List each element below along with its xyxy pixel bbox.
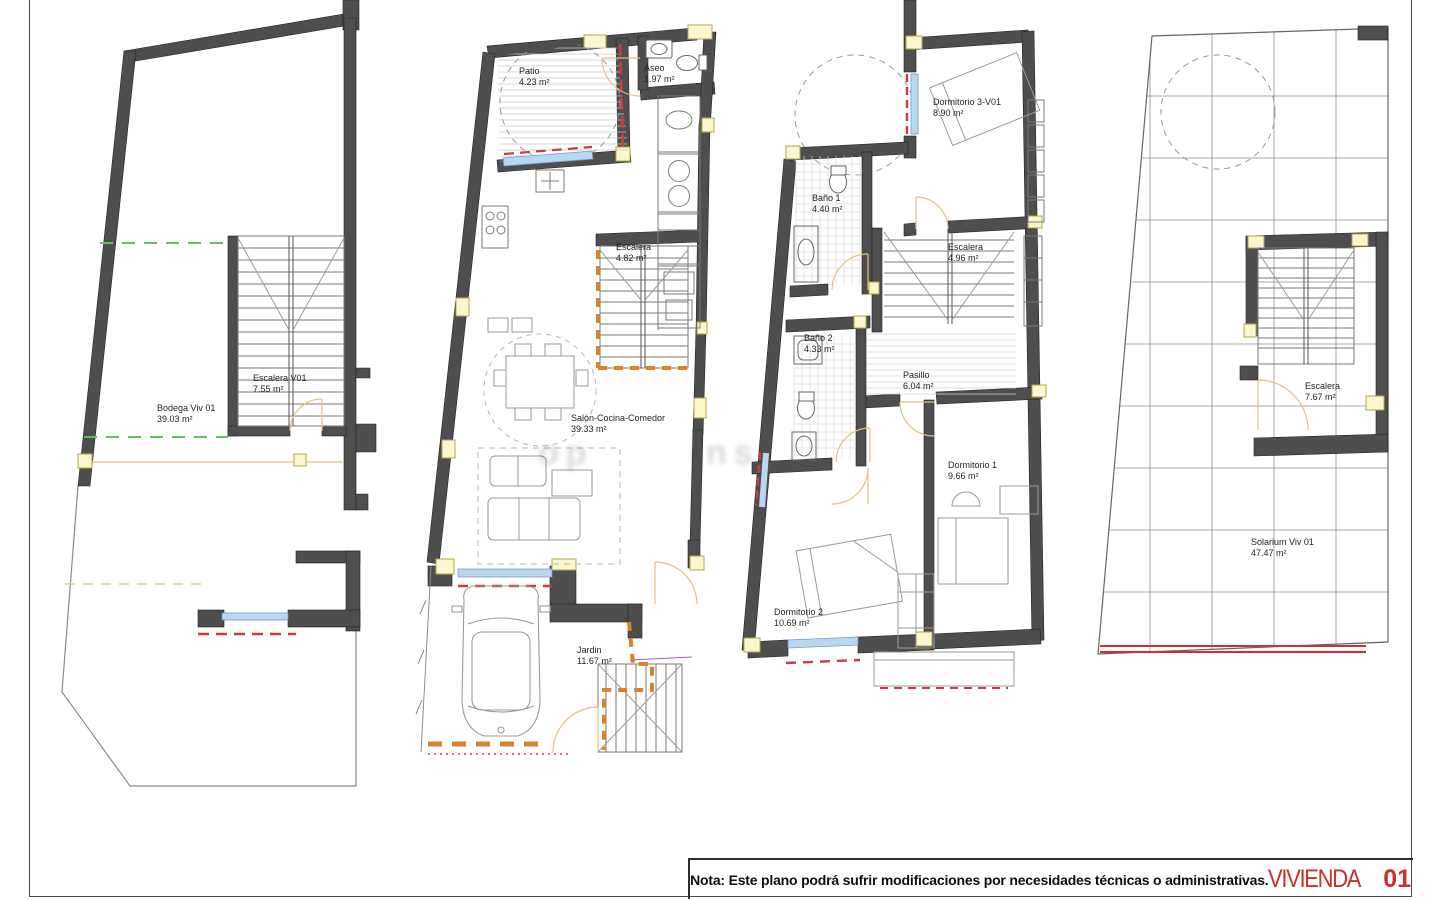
sheet-number: 01 [1383, 865, 1411, 894]
note-text: Nota: Este plano podrá sufrir modificaci… [690, 872, 1268, 888]
chimney-block [1358, 26, 1388, 40]
bed-icon [938, 518, 1008, 584]
pillar [78, 454, 92, 468]
walls [427, 28, 716, 638]
balcony [874, 652, 1014, 686]
room-label-dormitorio3: Dormitorio 3-V018.90 m² [933, 97, 1001, 119]
room-label-aseo: Aseo1.97 m² [644, 63, 675, 85]
window-sill-marker [786, 660, 860, 663]
door-arc [916, 197, 948, 229]
roof-outline [1098, 28, 1388, 654]
orange-dashed-wall [604, 622, 652, 750]
window [458, 569, 552, 577]
patio-void-circle [1161, 55, 1275, 169]
room-label-escalera-cubierta: Escalera7.67 m² [1305, 381, 1340, 403]
dorm1-furniture [938, 486, 1038, 584]
room-label-bano2: Baño 24.33 m² [804, 333, 835, 355]
room-label-bodega: Bodega Viv 0139.03 m² [157, 403, 215, 425]
plan-cubierta-drawing [1096, 24, 1390, 656]
door-arc [1258, 380, 1308, 430]
orange-dashed-wall [598, 250, 690, 368]
stair-icon [238, 236, 344, 426]
window [911, 74, 918, 134]
toilet-icon [677, 56, 698, 71]
patio-hatch [490, 42, 632, 162]
room-label-bano1: Baño 14.40 m² [812, 193, 843, 215]
sheet-title: VIVIENDA [1268, 865, 1360, 894]
room-label-dormitorio2: Dormitorio 210.69 m² [774, 607, 823, 629]
room-label-pasillo: Pasillo6.04 m² [903, 370, 934, 392]
room-label-jardin: Jardin11.67 m² [577, 645, 612, 667]
room-label-dormitorio1: Dormitorio 19.66 m² [948, 460, 997, 482]
plot-boundary [416, 566, 431, 752]
window [788, 637, 858, 648]
plan-sotano-drawing [62, 0, 376, 786]
watermark-fragment: op [538, 434, 594, 473]
room-label-patio: Patio4.23 m² [519, 66, 550, 88]
stair-icon [1258, 248, 1354, 364]
car-icon [452, 586, 550, 736]
plan-planta-baja-drawing [416, 25, 716, 754]
door-arc [832, 468, 868, 504]
window [222, 613, 288, 620]
stair-icon [598, 664, 682, 752]
kitchen-appliances-icon [482, 96, 700, 330]
watermark-fragment: ins [690, 434, 760, 473]
roof-grid [1096, 24, 1390, 656]
title-block: Nota: Este plano podrá sufrir modificaci… [688, 858, 1413, 899]
walls [78, 0, 376, 631]
pillar [294, 454, 306, 466]
dorm2-furniture [796, 534, 934, 648]
watermark: op ins [538, 434, 878, 473]
door-arc [553, 707, 598, 752]
room-label-escalera-p1: Escalera4.96 m² [948, 242, 983, 264]
room-label-escalera-pb: Escalera4.82 m² [616, 242, 651, 264]
sink-icon [646, 40, 672, 58]
pasillo-floor-stripes [866, 334, 1016, 394]
floor-plan-sheet: op ins Escalera V017.55 m² Bodega Viv 01… [0, 0, 1440, 900]
room-label-solarium: Solarium Viv 0147.47 m² [1251, 537, 1314, 559]
room-label-salon: Salón-Cocina-Comedor39.33 m² [571, 413, 665, 435]
purple-line [630, 657, 692, 660]
room-label-escalera-v01: Escalera V017.55 m² [253, 373, 307, 395]
plot-boundary [62, 486, 356, 786]
bed-icon [796, 534, 902, 618]
chair-icon [952, 492, 980, 506]
